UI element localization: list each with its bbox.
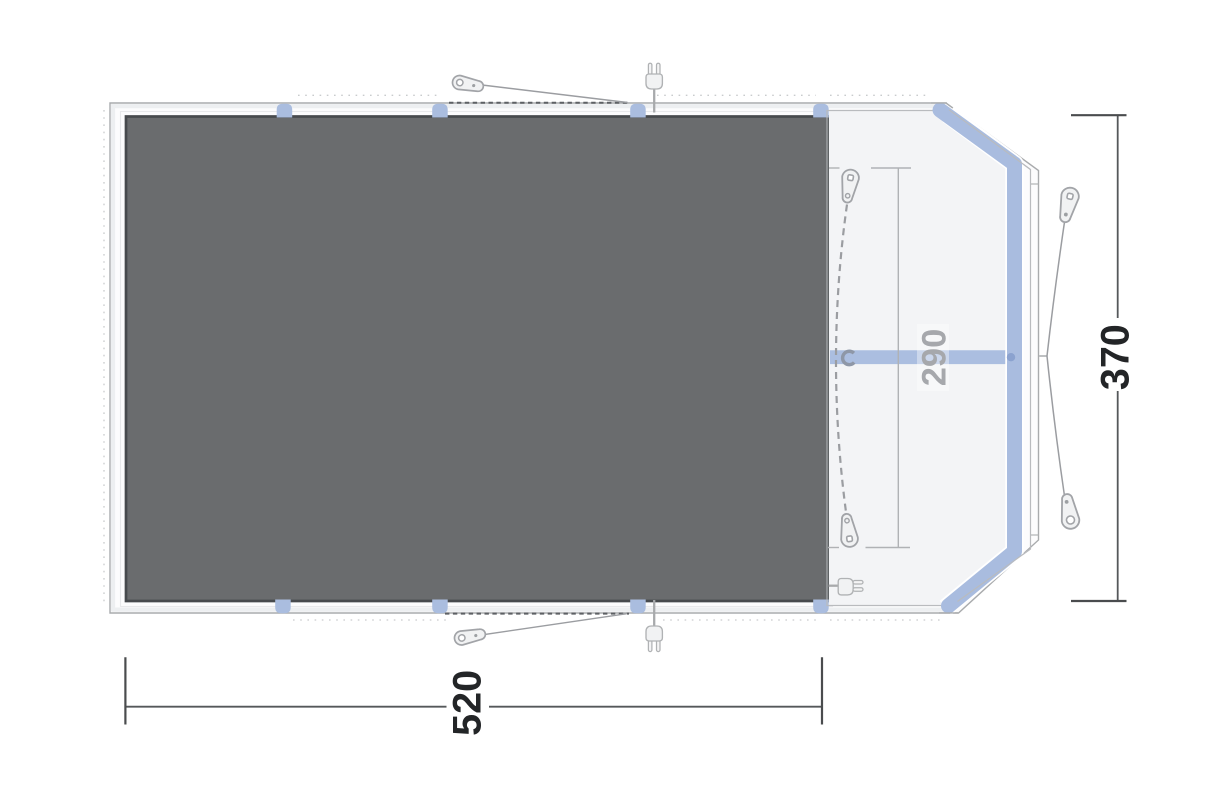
svg-text:370: 370 <box>1093 324 1137 390</box>
svg-text:290: 290 <box>916 329 954 387</box>
svg-text:520: 520 <box>445 670 489 736</box>
